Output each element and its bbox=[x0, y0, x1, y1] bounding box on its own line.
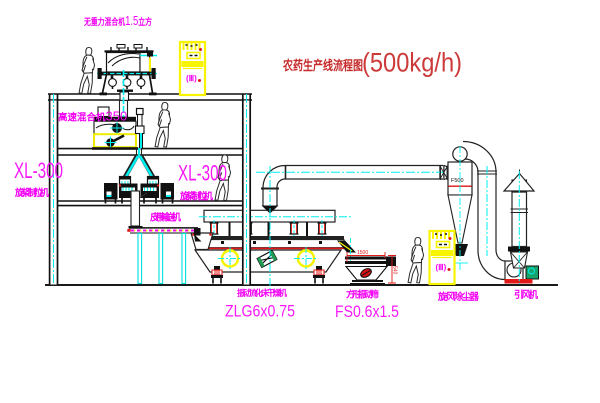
svg-text:无重力混合机1.5立方: 无重力混合机1.5立方 bbox=[83, 14, 152, 28]
svg-text:F500: F500 bbox=[451, 178, 464, 184]
svg-text:XL-300: XL-300 bbox=[14, 158, 63, 183]
svg-text:旋桨制粒机: 旋桨制粒机 bbox=[14, 187, 49, 199]
svg-text:XL-300: XL-300 bbox=[178, 161, 227, 186]
svg-text:ZLG6x0.75: ZLG6x0.75 bbox=[225, 302, 295, 321]
svg-text:振动流化床干燥机: 振动流化床干燥机 bbox=[237, 288, 287, 298]
svg-text:旋桨制粒机: 旋桨制粒机 bbox=[179, 191, 213, 203]
svg-text:(500kg/h): (500kg/h) bbox=[362, 48, 462, 78]
svg-text:FS0.6x1.5: FS0.6x1.5 bbox=[335, 302, 399, 321]
svg-text:(Ⅲ): (Ⅲ) bbox=[436, 263, 447, 272]
svg-text:农药生产线流程图: 农药生产线流程图 bbox=[282, 58, 363, 73]
svg-text:引风机: 引风机 bbox=[514, 289, 538, 301]
svg-text:方形振动筛: 方形振动筛 bbox=[346, 289, 379, 300]
svg-text:540: 540 bbox=[392, 266, 398, 275]
svg-text:(Ⅲ): (Ⅲ) bbox=[186, 74, 197, 83]
svg-text:1500: 1500 bbox=[357, 250, 368, 256]
svg-text:旋风除尘器: 旋风除尘器 bbox=[437, 291, 479, 303]
svg-text:皮带输送机: 皮带输送机 bbox=[149, 212, 181, 224]
